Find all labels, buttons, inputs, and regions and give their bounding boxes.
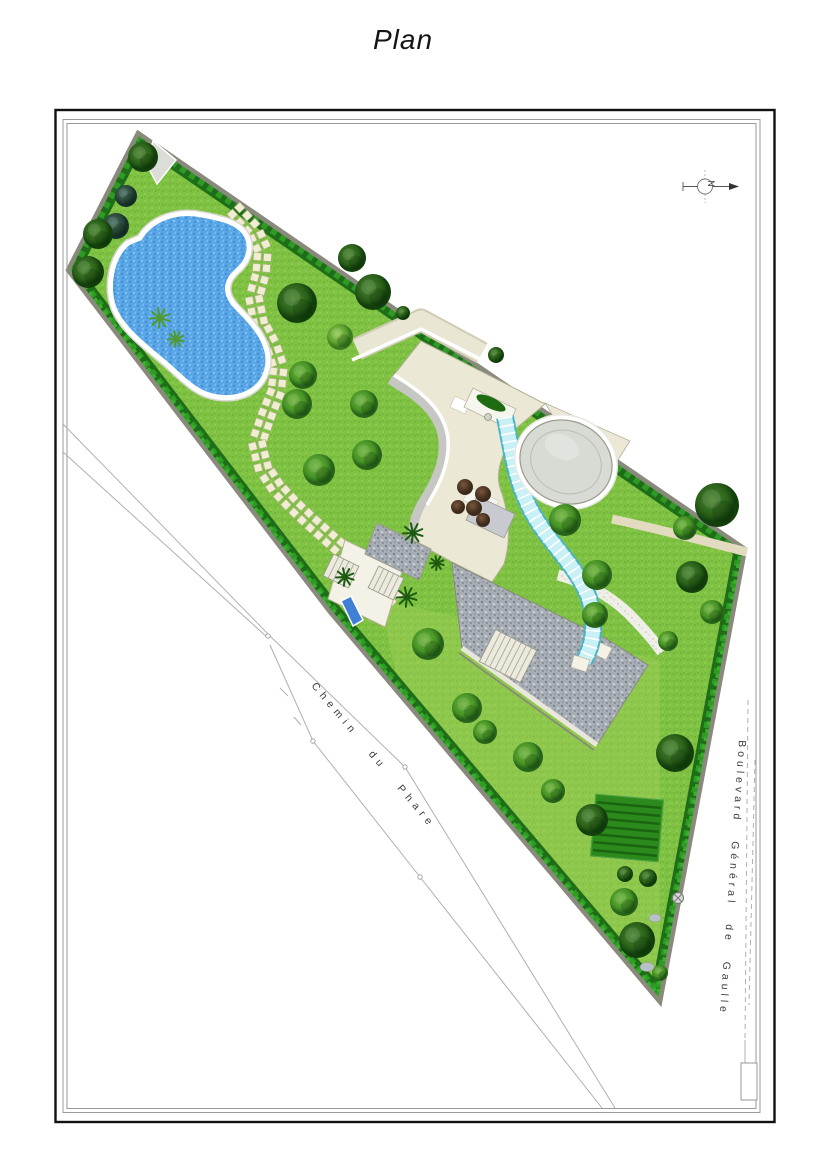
north-arrow-head [729,183,739,190]
stone-slab [649,914,661,922]
tree [289,361,317,389]
tree [352,440,382,470]
stone-slab [640,963,654,972]
courtyard-table [485,414,492,421]
tree [576,804,608,836]
tree [128,142,158,172]
street-label-boulevard-general-de-gaulle: Boulevard Général de Gaulle [717,740,748,1017]
tree [473,720,497,744]
plan-sheet: Plan [0,0,830,1151]
tree [617,866,633,882]
tree [277,283,317,323]
tree [652,965,668,981]
tree [695,483,739,527]
tree [115,185,137,207]
tree [72,256,104,288]
tree [355,274,391,310]
tree [282,389,312,419]
tree [452,693,482,723]
tree [549,504,581,536]
tree [396,306,410,320]
tree [582,560,612,590]
tree [673,516,697,540]
tree [610,888,638,916]
tree [619,922,655,958]
tree [488,347,504,363]
tree [412,628,444,660]
tree [513,742,543,772]
tree [676,561,708,593]
tree [700,600,724,624]
tree [303,454,335,486]
north-letter: N [706,180,716,187]
tree [656,734,694,772]
site-plan-drawing: Chemin du Phare Boulevard Général de Gau… [0,0,830,1151]
tree [541,779,565,803]
tree [83,219,113,249]
tree [338,244,366,272]
tree [582,602,608,628]
tree [350,390,378,418]
tree [327,324,353,350]
north-arrow: N [683,170,739,203]
tree [658,631,678,651]
tree [639,869,657,887]
